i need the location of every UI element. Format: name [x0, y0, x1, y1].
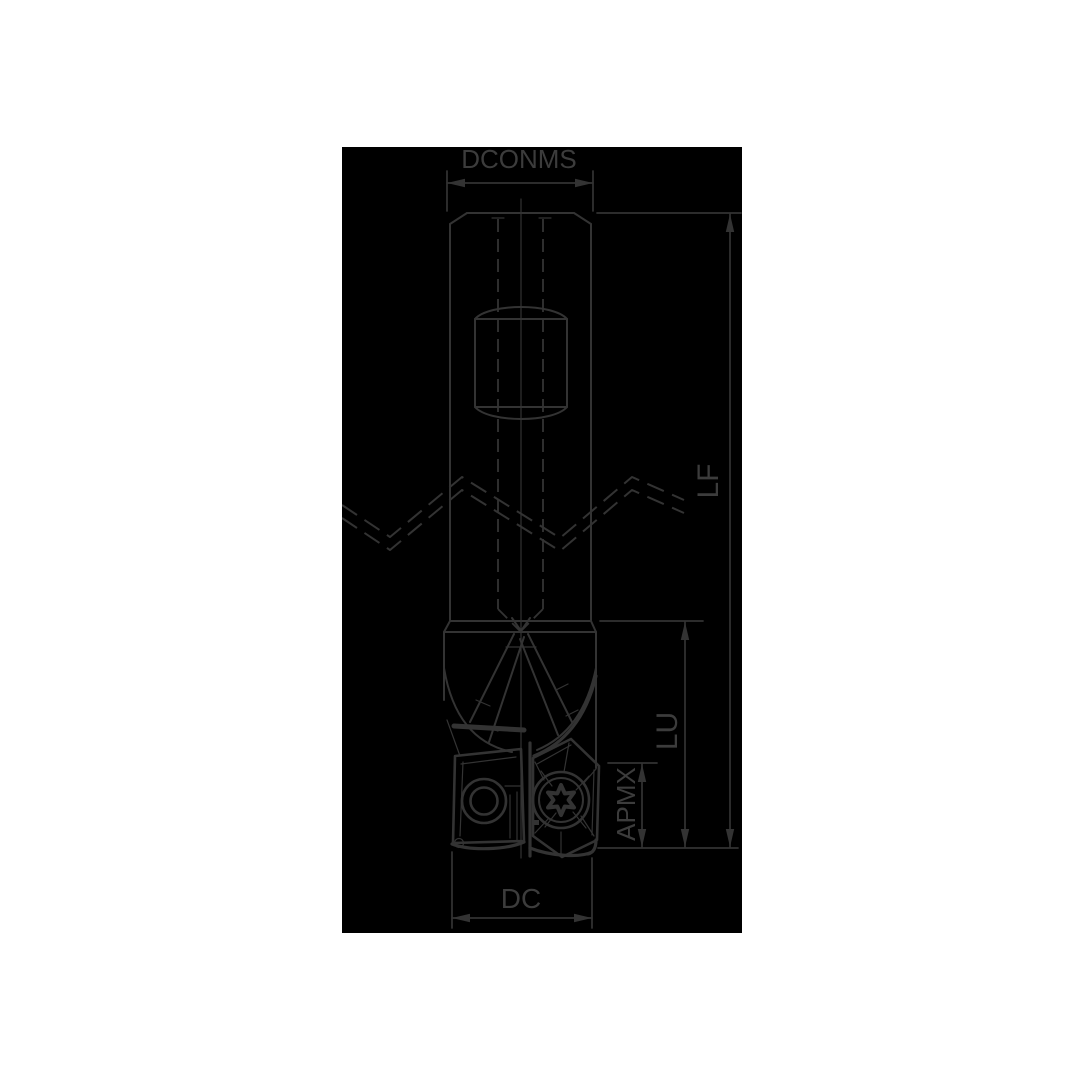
gash-arc-right [534, 676, 596, 756]
shank-chamfer-left [450, 213, 467, 224]
drawing-canvas: DCONMS LF LU [342, 147, 742, 933]
apmx-label: APMX [611, 767, 641, 841]
insert-right [530, 739, 599, 857]
dconms-extension-lines [447, 171, 593, 211]
lu-label: LU [651, 712, 684, 750]
lf-label: LF [692, 463, 725, 498]
cutter-head [444, 618, 596, 768]
dconms-label: DCONMS [461, 147, 577, 174]
torx-screw-outer [533, 772, 589, 828]
technical-drawing: DCONMS LF LU [342, 147, 742, 933]
screw-hole-inner [471, 788, 498, 815]
break-lines [342, 477, 684, 551]
dimension-apmx: APMX [608, 763, 657, 847]
insert-left [452, 749, 524, 849]
flute-right [520, 634, 572, 735]
dimension-dc: DC [452, 852, 592, 928]
dc-label: DC [501, 883, 541, 914]
dimension-dconms: DCONMS [447, 147, 593, 211]
insert-left-chamfer [460, 757, 516, 836]
dimension-lf: LF [597, 213, 741, 847]
shank-chamfer-right [574, 213, 591, 224]
insert-slot [505, 786, 523, 840]
pocket-seat-line [454, 726, 524, 730]
torx-star-icon [548, 785, 574, 815]
screw-hole-outer [462, 779, 506, 823]
page: DCONMS LF LU [0, 0, 1080, 1080]
